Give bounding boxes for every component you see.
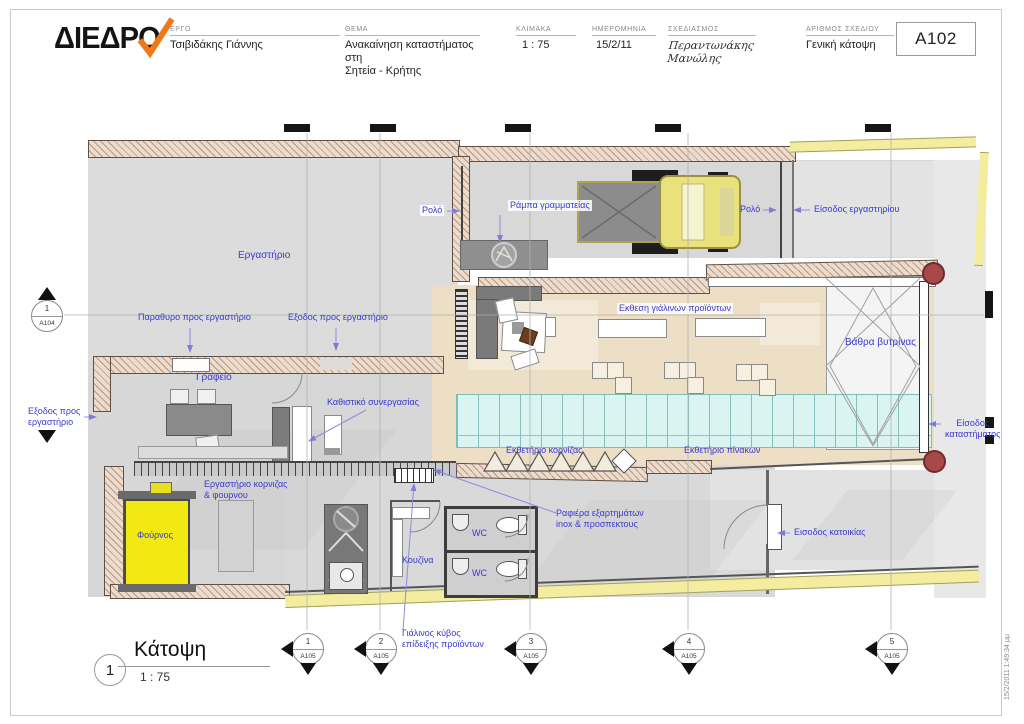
section-marker-4: 4 A105 <box>673 633 705 665</box>
marker-number: 4 <box>674 634 704 649</box>
marker-sheet: A105 <box>877 649 907 664</box>
label-kouzina: Κουζίνα <box>402 555 434 566</box>
marker-number: 1 <box>293 634 323 649</box>
marker-sheet: A104 <box>32 316 62 331</box>
label-grafeio: Γραφείο <box>196 372 232 383</box>
section-arrow-down-icon <box>300 663 316 675</box>
section-arrow-left-icon <box>865 641 877 657</box>
marker-sheet: A105 <box>293 649 323 664</box>
section-arrow-down-icon <box>373 663 389 675</box>
label-eisodos-katoikias: Εισοδος κατοικίας <box>794 527 865 538</box>
section-tick <box>865 124 891 132</box>
view-number: 1 <box>106 662 114 679</box>
marker-number: 5 <box>877 634 907 649</box>
section-arrow-left-icon <box>662 641 674 657</box>
section-tick <box>505 124 531 132</box>
section-marker-2: 2 A105 <box>365 633 397 665</box>
marker-sheet: A105 <box>366 649 396 664</box>
label-ergastirio-kornizas: Εργαστήριο κορνιζας & φουρνου <box>204 479 288 501</box>
label-wc-2: WC <box>472 568 487 579</box>
section-arrow-up-icon <box>38 287 56 300</box>
section-arrow-left-icon <box>504 641 516 657</box>
marker-sheet: A105 <box>516 649 546 664</box>
section-tick-right <box>985 291 993 318</box>
section-marker-3: 3 A105 <box>515 633 547 665</box>
plinth-diagonals <box>826 278 920 446</box>
view-scale: 1 : 75 <box>140 670 170 684</box>
section-marker-a104: 1 A104 <box>31 300 63 332</box>
label-kathistiko: Καθιστικό συνεργασίας <box>327 397 419 408</box>
print-timestamp: 15/2/2011 1:49:34 μμ <box>1004 590 1011 700</box>
marker-number: 3 <box>516 634 546 649</box>
section-tick <box>284 124 310 132</box>
label-ekthesi-gialinon: Εκθεση γιάλινων προϊόντων <box>617 303 733 314</box>
label-exodos-ergastirio: Εξοδος προς εργαστήριο <box>288 312 388 323</box>
label-vathra-vytrinas: Βάθρα βυτρίνας <box>845 337 916 348</box>
label-rafiera: Ραφιέρα εξαρτημάτων inox & προσπεκτους <box>556 508 644 530</box>
marker-number: 1 <box>32 301 62 316</box>
label-rolo-right: Ρολό <box>740 204 760 215</box>
label-ektheterio-kornizas: Εκθετήριο κορνίζας <box>506 445 583 456</box>
section-marker-5: 5 A105 <box>876 633 908 665</box>
view-number-circle: 1 <box>94 654 126 686</box>
label-rolo-left: Ρολό <box>420 205 444 216</box>
drawing-sheet: ΔΙΕΔΡΟ ΕΡΓΟ Τσιβιδάκης Γιάννης ΘΕΜΑ Ανακ… <box>0 0 1024 724</box>
view-title-rule <box>118 666 270 667</box>
label-exodos-left: Εξοδος προς εργαστήριο <box>28 406 80 428</box>
label-rampa: Ράμπα γραμματείας <box>508 200 592 211</box>
section-tick <box>370 124 396 132</box>
label-fournos: Φούρνος <box>126 530 184 541</box>
label-ergastirio: Εργαστήριο <box>238 250 290 261</box>
label-eisodos-katastimatos: Είσοδος καταστήματος <box>945 418 1001 440</box>
label-parathyro: Παραθυρο προς εργαστήριο <box>138 312 251 323</box>
section-arrow-down-icon <box>38 430 56 443</box>
section-marker-1: 1 A105 <box>292 633 324 665</box>
section-arrow-left-icon <box>354 641 366 657</box>
label-eisodos-ergastiriou: Είσοδος εργαστηρίου <box>814 204 899 215</box>
section-tick <box>655 124 681 132</box>
section-arrow-left-icon <box>281 641 293 657</box>
label-gialinos-kyvos: Γιάλινος κύβος επίδειξης προϊόντων <box>402 628 484 650</box>
leader-arrows <box>84 210 941 630</box>
view-title: Κάτοψη <box>134 638 206 662</box>
section-arrow-down-icon <box>884 663 900 675</box>
annotation-overlay <box>0 0 1024 724</box>
label-wc-1: WC <box>472 528 487 539</box>
marker-number: 2 <box>366 634 396 649</box>
section-arrow-down-icon <box>523 663 539 675</box>
label-ektheterio-pinakon: Εκθετήριο πίνακων <box>684 445 760 456</box>
section-arrow-down-icon <box>681 663 697 675</box>
marker-sheet: A105 <box>674 649 704 664</box>
